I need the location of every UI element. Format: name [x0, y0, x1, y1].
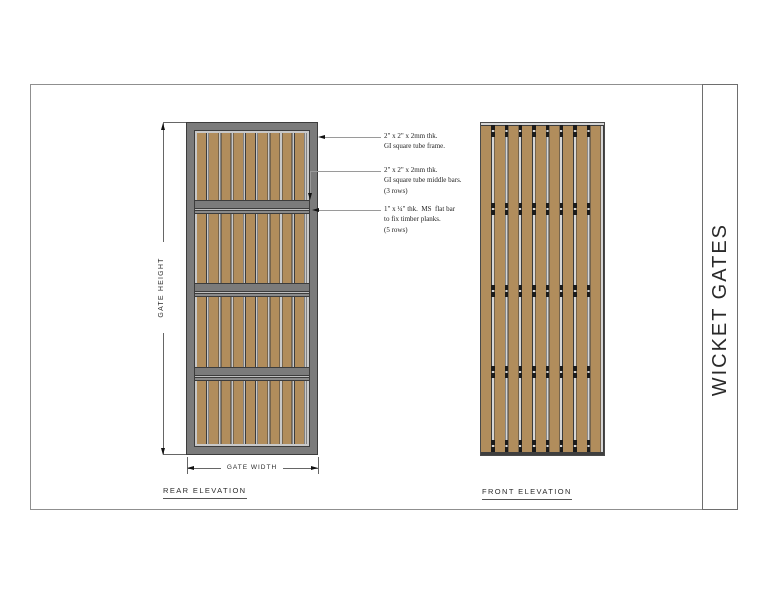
- screw-mark-icon: [587, 125, 590, 130]
- annotation-3-leader: [318, 210, 381, 211]
- front-gate-drawing: [480, 122, 605, 456]
- screw-mark-icon: [587, 132, 590, 137]
- screw-mark-icon: [560, 210, 563, 215]
- screw-mark-icon: [505, 132, 508, 137]
- screw-mark-icon: [587, 210, 590, 215]
- rear-gate-middle-bar-3: [195, 367, 309, 381]
- screw-mark-icon: [505, 203, 508, 208]
- screw-mark-icon: [560, 447, 563, 452]
- rear-gate-middle-bar-2: [195, 283, 309, 297]
- screw-mark-icon: [587, 292, 590, 297]
- screw-mark-icon: [546, 203, 549, 208]
- screw-mark-icon: [491, 125, 494, 130]
- screw-mark-icon: [491, 447, 494, 452]
- gate-width-dimension-label: GATE WIDTH: [221, 463, 283, 472]
- screw-mark-icon: [491, 373, 494, 378]
- screw-mark-icon: [560, 292, 563, 297]
- screw-mark-icon: [532, 366, 535, 371]
- screw-mark-icon: [519, 132, 522, 137]
- drawing-title: WICKET GATES: [709, 223, 732, 396]
- annotation-1-arrow-icon: [318, 135, 325, 139]
- annotation-line: 2" x 2" x 2mm thk.: [384, 165, 462, 175]
- annotation-line: (3 rows): [384, 186, 462, 196]
- screw-mark-icon: [573, 203, 576, 208]
- screw-mark-icon: [546, 132, 549, 137]
- screw-mark-icon: [560, 373, 563, 378]
- title-block: WICKET GATES: [702, 84, 738, 510]
- annotation-line: GI square tube middle bars.: [384, 175, 462, 185]
- gate-height-extension-top: [163, 122, 186, 123]
- screw-mark-icon: [532, 373, 535, 378]
- front-elevation-label: FRONT ELEVATION: [482, 487, 572, 500]
- screw-mark-icon: [546, 366, 549, 371]
- screw-mark-icon: [532, 203, 535, 208]
- screw-mark-icon: [532, 440, 535, 445]
- screw-mark-icon: [532, 132, 535, 137]
- screw-mark-icon: [519, 366, 522, 371]
- screw-mark-icon: [491, 366, 494, 371]
- gate-width-extension-right: [318, 457, 319, 474]
- screw-mark-icon: [546, 373, 549, 378]
- screw-mark-icon: [587, 440, 590, 445]
- screw-mark-icon: [519, 292, 522, 297]
- screw-mark-icon: [573, 132, 576, 137]
- screw-mark-icon: [587, 366, 590, 371]
- screw-mark-icon: [491, 440, 494, 445]
- screw-mark-icon: [573, 292, 576, 297]
- screw-mark-icon: [505, 210, 508, 215]
- dimension-arrow-right-icon: [311, 466, 318, 470]
- screw-mark-icon: [532, 292, 535, 297]
- screw-mark-icon: [505, 125, 508, 130]
- screw-mark-icon: [573, 447, 576, 452]
- screw-mark-icon: [519, 210, 522, 215]
- screw-mark-icon: [573, 125, 576, 130]
- screw-mark-icon: [532, 285, 535, 290]
- annotation-2-leader-drop: [310, 171, 311, 194]
- screw-mark-icon: [560, 285, 563, 290]
- screw-mark-icon: [491, 210, 494, 215]
- annotation-line: (5 rows): [384, 225, 455, 235]
- screw-mark-icon: [573, 285, 576, 290]
- screw-mark-icon: [546, 440, 549, 445]
- dimension-arrow-up-icon: [161, 123, 165, 130]
- annotation-frame-tube: 2" x 2" x 2mm thk. GI square tube frame.: [384, 131, 445, 152]
- annotation-line: to fix timber planks.: [384, 214, 455, 224]
- screw-mark-icon: [519, 203, 522, 208]
- gate-height-dimension-label: GATE HEIGHT: [156, 242, 167, 333]
- screw-mark-icon: [505, 285, 508, 290]
- annotation-flat-bars: 1" x ¼" thk. MS flat bar to fix timber p…: [384, 204, 455, 235]
- screw-mark-icon: [573, 373, 576, 378]
- annotation-2-arrow-icon: [308, 193, 312, 200]
- screw-mark-icon: [573, 440, 576, 445]
- annotation-2-leader: [310, 171, 381, 172]
- annotation-middle-bars: 2" x 2" x 2mm thk. GI square tube middle…: [384, 165, 462, 196]
- screw-mark-icon: [560, 440, 563, 445]
- screw-mark-icon: [546, 285, 549, 290]
- gate-height-extension-bottom: [163, 454, 186, 455]
- front-gate-screws: [481, 123, 604, 455]
- screw-mark-icon: [546, 292, 549, 297]
- rear-elevation-label: REAR ELEVATION: [163, 486, 247, 499]
- screw-mark-icon: [505, 440, 508, 445]
- annotation-line: 2" x 2" x 2mm thk.: [384, 131, 445, 141]
- dimension-arrow-left-icon: [187, 466, 194, 470]
- screw-mark-icon: [560, 125, 563, 130]
- screw-mark-icon: [587, 447, 590, 452]
- annotation-line: GI square tube frame.: [384, 141, 445, 151]
- screw-mark-icon: [560, 132, 563, 137]
- screw-mark-icon: [519, 125, 522, 130]
- screw-mark-icon: [505, 292, 508, 297]
- annotation-1-leader: [324, 137, 381, 138]
- screw-mark-icon: [546, 447, 549, 452]
- screw-mark-icon: [532, 125, 535, 130]
- screw-mark-icon: [532, 210, 535, 215]
- annotation-3-arrow-icon: [312, 208, 319, 212]
- rear-gate-middle-bar-1: [195, 200, 309, 214]
- screw-mark-icon: [573, 366, 576, 371]
- screw-mark-icon: [505, 447, 508, 452]
- screw-mark-icon: [505, 373, 508, 378]
- screw-mark-icon: [560, 203, 563, 208]
- dimension-arrow-down-icon: [161, 448, 165, 455]
- screw-mark-icon: [532, 447, 535, 452]
- screw-mark-icon: [519, 373, 522, 378]
- screw-mark-icon: [519, 285, 522, 290]
- screw-mark-icon: [546, 125, 549, 130]
- screw-mark-icon: [519, 440, 522, 445]
- screw-mark-icon: [491, 203, 494, 208]
- screw-mark-icon: [587, 203, 590, 208]
- screw-mark-icon: [491, 285, 494, 290]
- screw-mark-icon: [560, 366, 563, 371]
- annotation-line: 1" x ¼" thk. MS flat bar: [384, 204, 455, 214]
- screw-mark-icon: [505, 366, 508, 371]
- screw-mark-icon: [587, 285, 590, 290]
- screw-mark-icon: [491, 292, 494, 297]
- screw-mark-icon: [573, 210, 576, 215]
- screw-mark-icon: [491, 132, 494, 137]
- screw-mark-icon: [587, 373, 590, 378]
- screw-mark-icon: [519, 447, 522, 452]
- screw-mark-icon: [546, 210, 549, 215]
